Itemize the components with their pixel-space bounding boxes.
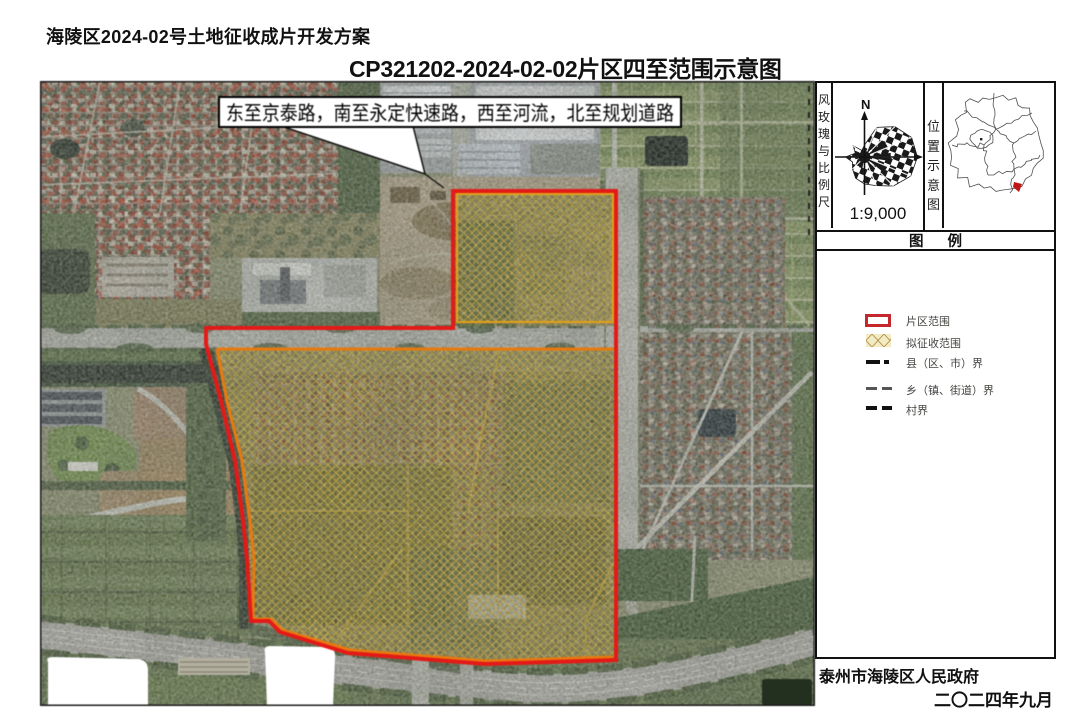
svg-text:东至京泰路，南至永定快速路，西至河流，北至规划道路: 东至京泰路，南至永定快速路，西至河流，北至规划道路 — [226, 102, 674, 125]
svg-text:N: N — [861, 97, 870, 112]
